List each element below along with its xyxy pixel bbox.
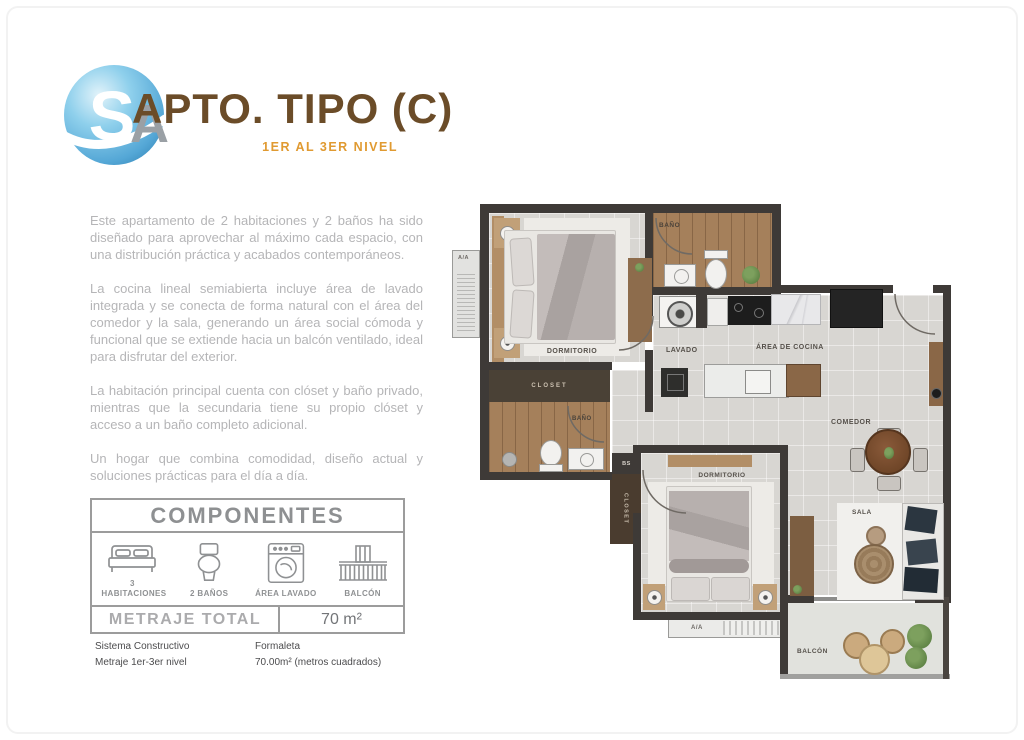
spec-label: Sistema Constructivo <box>95 641 255 652</box>
component-balcon: BALCÓN <box>324 543 401 599</box>
metraje-value: 70 m² <box>280 607 403 632</box>
component-label: 2 BAÑOS <box>190 589 228 599</box>
washer-icon <box>264 541 308 585</box>
floorplan: CLOSET BS CLOSET A/A A/A <box>440 192 966 692</box>
description: Este apartamento de 2 habitaciones y 2 b… <box>90 212 423 501</box>
page-subtitle: 1ER AL 3ER NIVEL <box>180 140 398 154</box>
svg-text:S: S <box>89 77 136 155</box>
component-label: BALCÓN <box>344 589 381 599</box>
description-paragraph: Un hogar que combina comodidad, diseño a… <box>90 450 423 484</box>
component-area-lavado: ÁREA LAVADO <box>248 541 325 599</box>
component-banos: 2 BAÑOS <box>171 541 248 599</box>
component-habitaciones: 3 HABITACIONES <box>94 541 171 599</box>
spec-row: Sistema Constructivo Formaleta <box>95 641 381 652</box>
spec-value: 70.00m² (metros cuadrados) <box>255 657 381 668</box>
page-title: APTO. TIPO (C) <box>132 86 453 132</box>
metraje-row: METRAJE TOTAL 70 m² <box>92 605 403 632</box>
metraje-label: METRAJE TOTAL <box>92 607 280 632</box>
door-swing-arcs <box>440 192 966 692</box>
description-paragraph: La cocina lineal semiabierta incluye áre… <box>90 280 423 365</box>
specs: Sistema Constructivo Formaleta Metraje 1… <box>95 641 381 673</box>
description-paragraph: Este apartamento de 2 habitaciones y 2 b… <box>90 212 423 263</box>
bed-icon <box>105 541 159 575</box>
balcony-icon <box>336 543 390 585</box>
component-label: ÁREA LAVADO <box>255 589 317 599</box>
description-paragraph: La habitación principal cuenta con clóse… <box>90 382 423 433</box>
components-title: COMPONENTES <box>92 500 403 533</box>
components-icons: 3 HABITACIONES 2 BAÑOS <box>92 533 403 605</box>
components-box: COMPONENTES 3 HABITACIONES 2 BAÑOS <box>90 498 405 634</box>
spec-label: Metraje 1er-3er nivel <box>95 657 255 668</box>
spec-value: Formaleta <box>255 641 300 652</box>
page: S A APTO. TIPO (C) 1ER AL 3ER NIVEL Este… <box>0 0 1024 740</box>
component-label: 3 HABITACIONES <box>101 579 163 599</box>
toilet-icon <box>192 541 226 585</box>
spec-row: Metraje 1er-3er nivel 70.00m² (metros cu… <box>95 657 381 668</box>
